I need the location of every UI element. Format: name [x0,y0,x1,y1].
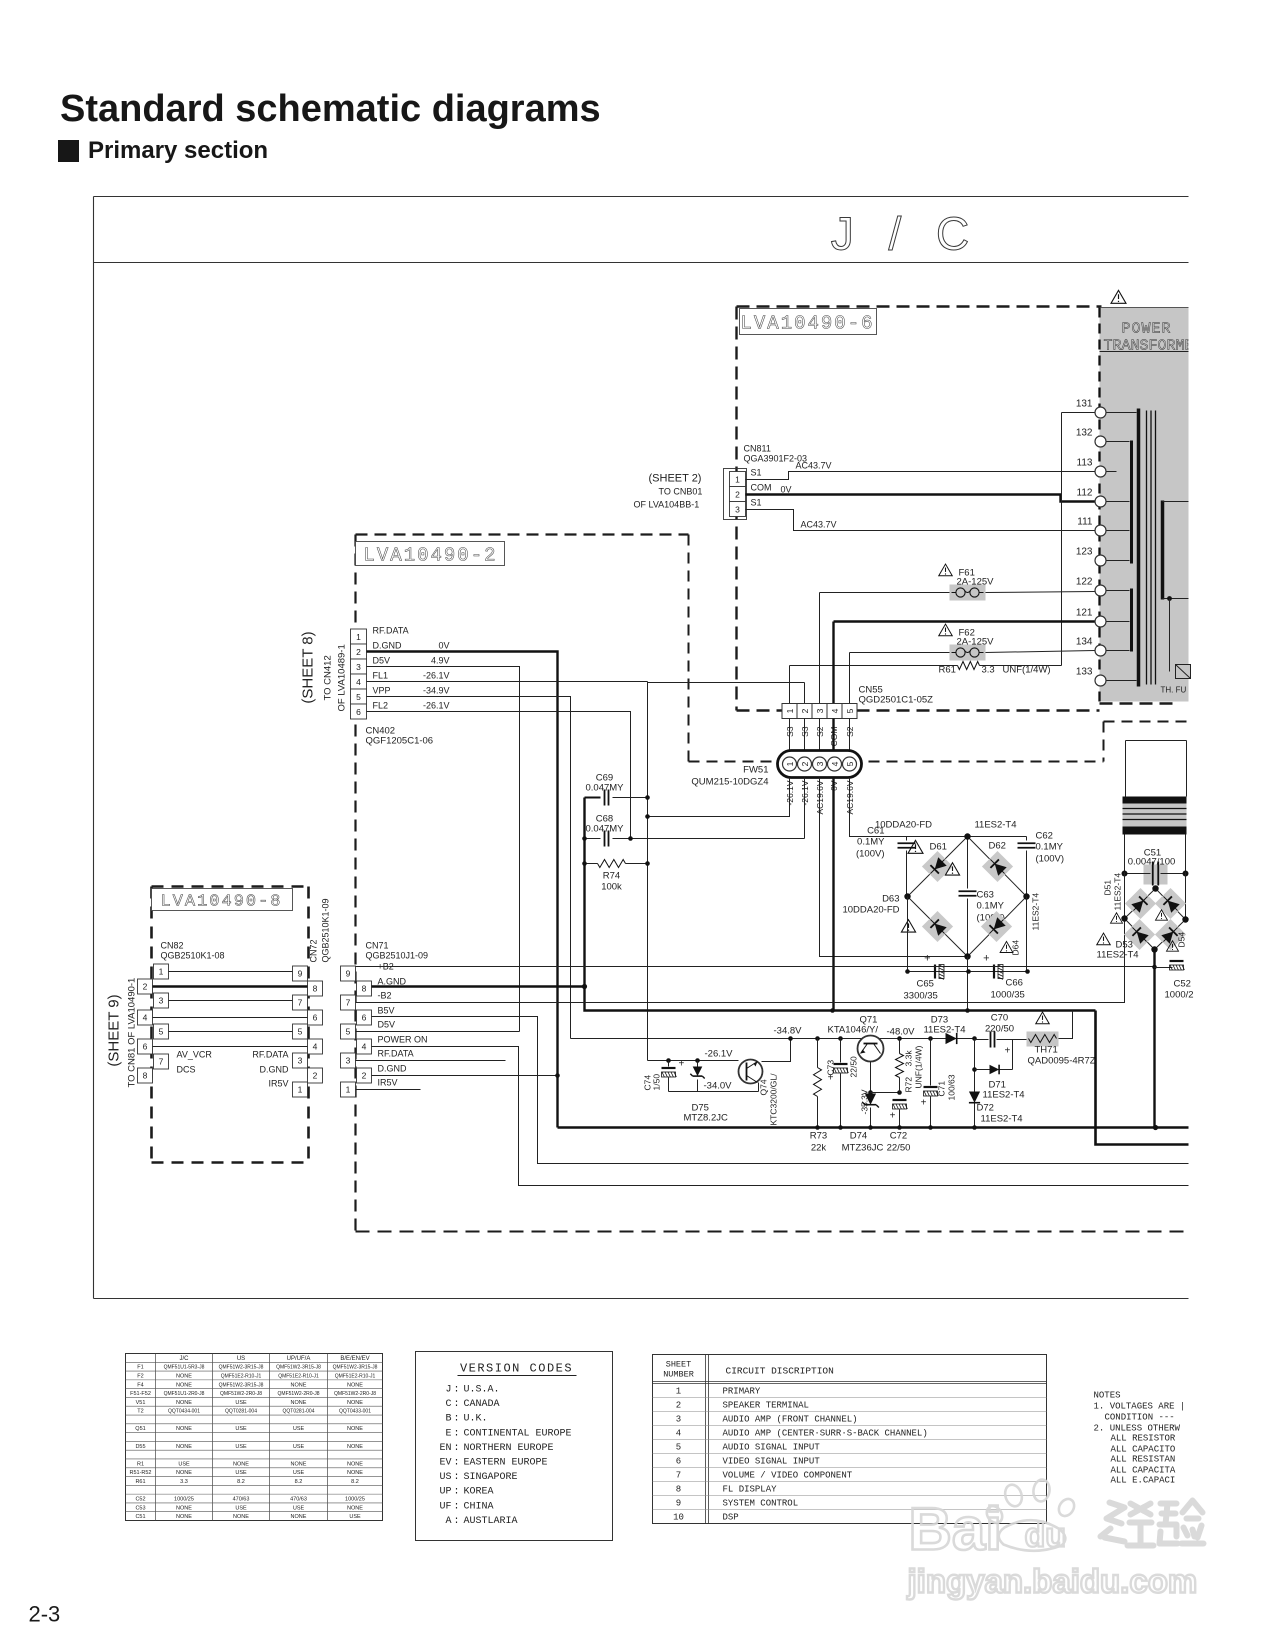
svg-text::: : [453,1516,459,1527]
svg-text::: : [453,1428,459,1439]
svg-text:NONE: NONE [176,1514,192,1520]
svg-text:D74: D74 [850,1131,867,1142]
svg-text:V51: V51 [136,1400,146,1406]
svg-text:ALL RESISTAN: ALL RESISTAN [1111,1455,1176,1465]
svg-text:5: 5 [298,1027,303,1037]
svg-text:-48.0V: -48.0V [887,1027,916,1038]
svg-text:112: 112 [1077,488,1093,499]
svg-text:1: 1 [159,967,164,977]
svg-text:3: 3 [676,1415,681,1425]
svg-text:2-3: 2-3 [29,1602,61,1627]
svg-text::: : [453,1487,459,1498]
svg-text:121: 121 [1076,608,1093,619]
svg-text:NONE: NONE [176,1426,192,1432]
svg-text:D61: D61 [930,842,947,853]
svg-text:UP/UF/A: UP/UF/A [287,1356,311,1362]
svg-text:QGD2501C1-05Z: QGD2501C1-05Z [859,695,934,706]
svg-text:1000/35: 1000/35 [991,990,1025,1001]
svg-text:(SHEET 9): (SHEET 9) [106,994,123,1066]
svg-text:R73: R73 [810,1131,827,1142]
svg-text:NONE: NONE [347,1444,363,1450]
svg-text:1: 1 [785,761,795,766]
svg-text:CANADA: CANADA [464,1399,500,1410]
svg-text:2: 2 [800,761,810,766]
svg-text:F51-F52: F51-F52 [130,1391,151,1397]
svg-text:0.1MY: 0.1MY [1036,842,1064,853]
svg-text:3.3k: 3.3k [904,1050,914,1067]
svg-text:8: 8 [313,984,318,994]
svg-text:UF: UF [439,1501,451,1512]
svg-text:-34.0V: -34.0V [704,1081,733,1092]
svg-text:EV: EV [439,1458,451,1469]
svg-text:123: 123 [1076,547,1093,558]
svg-text:134: 134 [1076,637,1093,648]
svg-text:8: 8 [143,1071,148,1081]
svg-text:F4: F4 [137,1382,143,1388]
svg-text:SINGAPORE: SINGAPORE [464,1472,518,1483]
svg-text:3.3: 3.3 [982,665,995,676]
svg-text:ALL CAPACITA: ALL CAPACITA [1111,1466,1176,1476]
svg-text:C70: C70 [991,1013,1008,1024]
svg-text:QQT0281-004: QQT0281-004 [225,1409,257,1415]
svg-text:6: 6 [362,1013,367,1023]
svg-text:132: 132 [1076,428,1093,439]
svg-text:IR5V: IR5V [378,1078,398,1088]
svg-text:C65: C65 [917,979,934,990]
svg-text:PRIMARY: PRIMARY [723,1387,761,1397]
svg-text:0.047MY: 0.047MY [585,824,624,835]
svg-text:CN82: CN82 [161,941,184,951]
svg-text:10DDA20-FD: 10DDA20-FD [842,905,899,916]
svg-text:QMF51W2-3R15-J8: QMF51W2-3R15-J8 [333,1365,378,1371]
svg-text:4: 4 [143,1013,148,1023]
svg-text:122: 122 [1076,577,1093,588]
svg-text::: : [453,1414,459,1425]
svg-text:NONE: NONE [233,1461,249,1467]
svg-text:USE: USE [293,1470,305,1476]
svg-text:D54: D54 [1177,932,1187,948]
svg-text::: : [453,1399,459,1410]
svg-text:FL DISPLAY: FL DISPLAY [723,1485,778,1495]
svg-text:6: 6 [143,1042,148,1052]
svg-text:6: 6 [313,1013,318,1023]
svg-text:TH71: TH71 [1035,1045,1058,1056]
svg-text:QUM215-10DGZ4: QUM215-10DGZ4 [691,777,768,788]
svg-text:C51: C51 [135,1514,145,1520]
svg-text:NONE: NONE [176,1400,192,1406]
svg-text:470/63: 470/63 [290,1497,307,1503]
svg-text:4: 4 [830,761,840,766]
svg-text:5: 5 [346,1027,351,1037]
svg-text:R51-R52: R51-R52 [129,1470,151,1476]
svg-text:AUDIO SIGNAL INPUT: AUDIO SIGNAL INPUT [723,1443,821,1453]
svg-text:8.2: 8.2 [237,1479,245,1485]
svg-text:NONE: NONE [176,1382,192,1388]
svg-text:1: 1 [676,1387,681,1397]
svg-text:USE: USE [293,1426,305,1432]
svg-text:1/50: 1/50 [652,1074,662,1091]
svg-text:D.GND: D.GND [260,1065,290,1075]
svg-text:111: 111 [1077,517,1093,528]
svg-text:AC43.7V: AC43.7V [796,461,832,471]
svg-text:100k: 100k [601,882,622,893]
svg-text:1000/25: 1000/25 [345,1497,365,1503]
svg-text:7: 7 [298,998,303,1008]
svg-text:11ES2-T4: 11ES2-T4 [1113,873,1123,911]
svg-text:QQT0434-001: QQT0434-001 [168,1409,200,1415]
svg-text:QGB2510K1-09: QGB2510K1-09 [321,898,331,962]
svg-text:8: 8 [676,1485,681,1495]
svg-text:R72: R72 [904,1077,914,1093]
svg-text:VPP: VPP [373,686,391,696]
svg-text:(SHEET 2): (SHEET 2) [649,473,702,485]
svg-text:TO CNB01: TO CNB01 [659,487,703,497]
svg-text:Q51: Q51 [135,1426,145,1432]
svg-text:3: 3 [346,1056,351,1066]
svg-text:U.S.A.: U.S.A. [464,1385,500,1396]
svg-text:R74: R74 [603,871,620,882]
svg-text:EASTERN EUROPE: EASTERN EUROPE [464,1458,548,1469]
svg-text:2: 2 [143,982,148,992]
svg-text:+: + [921,1098,927,1109]
svg-text:ALL CAPACITO: ALL CAPACITO [1111,1445,1176,1455]
svg-text:QMF51E2-R10-J1: QMF51E2-R10-J1 [278,1373,319,1379]
svg-text:USE: USE [349,1514,361,1520]
svg-text:10DDA20-FD: 10DDA20-FD [875,820,932,831]
svg-text:4: 4 [362,1042,367,1052]
svg-text:C62: C62 [1036,831,1053,842]
svg-text:NONE: NONE [233,1514,249,1520]
svg-text:UNF(1/4W): UNF(1/4W) [914,1045,924,1088]
svg-text:TO CN412: TO CN412 [323,655,334,700]
svg-text:3: 3 [815,761,825,766]
svg-text:MTZ36JC: MTZ36JC [842,1143,884,1154]
svg-text:470/63: 470/63 [233,1497,250,1503]
svg-text:7: 7 [676,1471,681,1481]
svg-text:DSP: DSP [723,1513,739,1523]
svg-text:POWER ON: POWER ON [378,1035,428,1045]
svg-text:-35.3V: -35.3V [860,1089,870,1114]
svg-text:4: 4 [356,677,361,687]
svg-text:100/63: 100/63 [947,1074,957,1100]
svg-text:AV_VCR: AV_VCR [177,1050,213,1060]
svg-text:4: 4 [676,1429,681,1439]
svg-text:USE: USE [235,1505,247,1511]
svg-text:2: 2 [735,490,740,500]
svg-text:LVA10490-6: LVA10490-6 [740,313,874,335]
svg-text:RF.DATA: RF.DATA [373,626,409,636]
svg-text:C63: C63 [977,890,994,901]
svg-text:+: + [924,953,930,965]
svg-text:KTA1046/Y/: KTA1046/Y/ [828,1025,879,1036]
svg-text:9: 9 [346,969,351,979]
svg-text:5: 5 [356,692,361,702]
svg-text:11ES2-T4: 11ES2-T4 [981,1114,1023,1125]
svg-text:AC43.7V: AC43.7V [801,520,837,530]
svg-text:C66: C66 [1006,978,1023,989]
svg-text:USE: USE [235,1400,247,1406]
svg-text:D55: D55 [135,1444,145,1450]
svg-text:C53: C53 [135,1505,145,1511]
svg-text:B: B [445,1414,451,1425]
svg-text:DCS: DCS [177,1065,196,1075]
svg-text:C: C [445,1399,451,1410]
svg-text:D72: D72 [977,1103,994,1114]
svg-text:R61: R61 [135,1479,145,1485]
svg-text:QMF51W2-2R0-J8: QMF51W2-2R0-J8 [334,1391,376,1397]
svg-text:220/50: 220/50 [985,1024,1014,1035]
svg-text:POWER: POWER [1121,321,1171,338]
svg-text:Bai: Bai [909,1496,1002,1563]
svg-text:NONE: NONE [176,1444,192,1450]
svg-text:(100V): (100V) [856,849,885,860]
svg-text:QGF1205C1-06: QGF1205C1-06 [366,736,434,747]
svg-text:1. VOLTAGES ARE |: 1. VOLTAGES ARE | [1094,1402,1186,1412]
svg-text::: : [453,1458,459,1469]
svg-text:8: 8 [362,984,367,994]
svg-text:F2: F2 [137,1373,143,1379]
svg-text:2. UNLESS OTHERW: 2. UNLESS OTHERW [1094,1424,1181,1434]
svg-text:D63: D63 [882,894,899,905]
svg-text:+: + [890,1111,896,1122]
svg-text:CN71: CN71 [366,941,389,951]
svg-text:1000/25: 1000/25 [174,1497,194,1503]
svg-text:C52: C52 [135,1497,145,1503]
svg-text:NONE: NONE [176,1373,192,1379]
svg-text:QAD0095-4R7Z: QAD0095-4R7Z [1028,1056,1096,1067]
svg-text:1: 1 [785,708,795,713]
svg-text:2A-125V: 2A-125V [957,577,995,588]
svg-text:QMF51W2-3R15-J8: QMF51W2-3R15-J8 [276,1365,321,1371]
svg-text:US: US [439,1472,451,1483]
svg-text:EN: EN [439,1443,451,1454]
svg-text:5: 5 [845,708,855,713]
svg-text:CIRCUIT DISCRIPTION: CIRCUIT DISCRIPTION [726,1366,834,1377]
svg-text:3: 3 [159,996,164,1006]
svg-text:QMF51E2-R10-J1: QMF51E2-R10-J1 [335,1373,376,1379]
svg-text:0.1MY: 0.1MY [977,901,1005,912]
svg-text:A.GND: A.GND [378,977,407,987]
svg-text:0V: 0V [781,485,792,495]
svg-text:B5V: B5V [378,1006,395,1016]
svg-text:NONE: NONE [176,1470,192,1476]
svg-text:QGB2510J1-09: QGB2510J1-09 [366,951,429,961]
svg-text:5: 5 [159,1027,164,1037]
svg-text:COM: COM [751,483,772,493]
svg-text:2: 2 [356,647,361,657]
svg-text:OF LVA10489-1: OF LVA10489-1 [337,644,348,711]
svg-text:2: 2 [362,1071,367,1081]
svg-text:3.3: 3.3 [180,1479,188,1485]
svg-text:C52: C52 [1174,979,1191,990]
svg-text:RF.DATA: RF.DATA [252,1050,288,1060]
svg-text:D5V: D5V [378,1020,396,1030]
svg-text:OF LVA104BB-1: OF LVA104BB-1 [634,500,700,510]
svg-text:U.K.: U.K. [464,1414,488,1425]
svg-text:LVA10490-2: LVA10490-2 [363,545,497,567]
svg-text::: : [453,1501,459,1512]
svg-text:UNF(1/4W): UNF(1/4W) [1003,665,1051,676]
svg-text:ALL RESISTOR: ALL RESISTOR [1111,1434,1176,1444]
svg-text:AUDIO AMP (FRONT CHANNEL): AUDIO AMP (FRONT CHANNEL) [723,1415,858,1425]
svg-text:NONE: NONE [291,1514,307,1520]
svg-text:USE: USE [235,1470,247,1476]
svg-text:jingyan.baidu.com: jingyan.baidu.com [907,1563,1198,1600]
svg-text:NONE: NONE [347,1426,363,1432]
svg-text:+: + [679,1059,685,1070]
svg-text:D.GND: D.GND [373,641,403,651]
svg-text:NONE: NONE [347,1400,363,1406]
svg-text:SPEAKER TERMINAL: SPEAKER TERMINAL [723,1401,809,1411]
svg-text:UP: UP [439,1487,451,1498]
svg-text:LVA10490-8: LVA10490-8 [160,893,282,912]
svg-text:10: 10 [673,1513,684,1523]
svg-text:3: 3 [356,662,361,672]
svg-text::: : [453,1385,459,1396]
svg-text:USE: USE [235,1426,247,1432]
svg-text:8.2: 8.2 [351,1479,359,1485]
svg-text:-26.1V: -26.1V [423,671,450,681]
svg-text:NONE: NONE [291,1400,307,1406]
svg-text:4: 4 [313,1042,318,1052]
svg-text:FW51: FW51 [743,765,768,776]
svg-text:3: 3 [815,708,825,713]
svg-text:QMF51W2-2R0-J8: QMF51W2-2R0-J8 [220,1391,262,1397]
svg-text:0.047MY: 0.047MY [585,783,624,794]
svg-text:QQT0281-004: QQT0281-004 [283,1409,315,1415]
svg-text:9: 9 [676,1499,681,1509]
svg-text:S1: S1 [751,468,762,478]
svg-text:3: 3 [298,1056,303,1066]
svg-text:J/C: J/C [180,1356,190,1362]
svg-text:6: 6 [356,707,361,717]
svg-text:22/50: 22/50 [887,1143,911,1154]
svg-text:NONE: NONE [291,1382,307,1388]
svg-text:C72: C72 [890,1131,907,1142]
svg-text:1: 1 [346,1085,351,1095]
svg-text:NONE: NONE [347,1382,363,1388]
svg-text:D5V: D5V [373,656,391,666]
svg-text:NUMBER: NUMBER [663,1370,694,1380]
svg-text:FL2: FL2 [373,701,389,711]
svg-text:11ES2-T4: 11ES2-T4 [1031,893,1041,931]
svg-text:5: 5 [676,1443,681,1453]
svg-text:Q74: Q74 [759,1079,769,1095]
svg-text:22k: 22k [811,1143,827,1154]
svg-text:QQT0433-001: QQT0433-001 [339,1409,371,1415]
svg-text:-34.8V: -34.8V [774,1026,803,1037]
svg-text:FL1: FL1 [373,671,389,681]
svg-text:NONE: NONE [347,1461,363,1467]
svg-text:NORTHERN EUROPE: NORTHERN EUROPE [464,1443,554,1454]
svg-text::: : [453,1472,459,1483]
svg-text:R61: R61 [939,665,956,676]
svg-text:US: US [237,1356,245,1362]
svg-text:2: 2 [313,1071,318,1081]
svg-text:USE: USE [178,1461,190,1467]
svg-text:QMF51W2-3R15-J8: QMF51W2-3R15-J8 [219,1382,264,1388]
svg-text:131: 131 [1076,399,1093,410]
svg-text:11ES2-T4: 11ES2-T4 [1097,950,1139,961]
svg-text:NOTES: NOTES [1094,1391,1121,1401]
svg-text:CHINA: CHINA [464,1501,494,1512]
svg-text:QMF51U1-5R3-J8: QMF51U1-5R3-J8 [164,1365,205,1371]
svg-text:E: E [445,1428,451,1439]
svg-text:(100V): (100V) [1036,854,1065,865]
svg-text:D62: D62 [989,841,1006,852]
svg-text:USE: USE [293,1444,305,1450]
svg-text:C73: C73 [826,1060,836,1076]
svg-text:6: 6 [676,1457,681,1467]
svg-text:VOLUME / VIDEO COMPONENT: VOLUME / VIDEO COMPONENT [723,1471,853,1481]
svg-text:-26.1V: -26.1V [705,1049,734,1060]
svg-text:MTZ8.2JC: MTZ8.2JC [684,1113,728,1124]
svg-text:NONE: NONE [347,1505,363,1511]
svg-text:+: + [1005,1046,1011,1057]
svg-text:TRANSFORMER: TRANSFORMER [1104,338,1203,355]
svg-text:(SHEET 8): (SHEET 8) [300,631,317,703]
svg-text:9: 9 [298,969,303,979]
svg-text:KOREA: KOREA [464,1487,494,1498]
svg-text:4: 4 [830,708,840,713]
svg-text:J / C: J / C [831,208,981,260]
svg-text:1: 1 [735,475,740,485]
svg-text:-26.1V: -26.1V [423,701,450,711]
svg-text:7: 7 [159,1057,164,1067]
svg-text:S1: S1 [751,498,762,508]
svg-text:133: 133 [1076,667,1093,678]
svg-text:USE: USE [293,1505,305,1511]
svg-text:J: J [445,1385,451,1396]
svg-text:1: 1 [356,632,361,642]
svg-text:2: 2 [676,1401,681,1411]
svg-text:+: + [983,953,989,965]
svg-text:5: 5 [845,761,855,766]
svg-text:RF.DATA: RF.DATA [378,1049,414,1059]
svg-text:USE: USE [235,1444,247,1450]
svg-text:QGB2510K1-08: QGB2510K1-08 [161,951,225,961]
svg-text:VIDEO SIGNAL INPUT: VIDEO SIGNAL INPUT [723,1457,821,1467]
svg-text:B/E/EN/EV: B/E/EN/EV [340,1356,369,1362]
svg-text:2A-125V: 2A-125V [957,637,995,648]
svg-text:-B2: -B2 [378,991,392,1001]
svg-text:VERSION CODES: VERSION CODES [460,1362,573,1376]
svg-text:113: 113 [1077,458,1093,469]
svg-text:11ES2-T4: 11ES2-T4 [983,1090,1025,1101]
svg-text:F1: F1 [137,1365,143,1371]
svg-text:22/50: 22/50 [849,1056,859,1078]
svg-text:NONE: NONE [347,1470,363,1476]
svg-text:SYSTEM CONTROL: SYSTEM CONTROL [723,1499,799,1509]
svg-text:CN811: CN811 [744,444,771,454]
svg-text:C71: C71 [937,1081,947,1097]
svg-text:1: 1 [298,1085,303,1095]
svg-text:D.GND: D.GND [378,1064,408,1074]
svg-text:CN72: CN72 [309,939,319,962]
svg-text:AUDIO AMP (CENTER·SURR·S-BACK: AUDIO AMP (CENTER·SURR·S-BACK CHANNEL) [723,1429,928,1439]
svg-text:T2: T2 [137,1409,143,1415]
svg-text:11ES2-T4: 11ES2-T4 [923,1025,965,1036]
svg-text:3300/35: 3300/35 [904,991,938,1002]
svg-text:7: 7 [346,998,351,1008]
svg-text:du: du [1025,1517,1067,1555]
svg-text:0.1MY: 0.1MY [857,837,885,848]
svg-text::: : [453,1443,459,1454]
svg-text:QMF51U1-2R0-J8: QMF51U1-2R0-J8 [164,1391,205,1397]
svg-text:ALL E.CAPACI: ALL E.CAPACI [1111,1476,1176,1486]
svg-text:QMF51E2-R10-J1: QMF51E2-R10-J1 [221,1373,262,1379]
svg-text:R1: R1 [137,1461,144,1467]
